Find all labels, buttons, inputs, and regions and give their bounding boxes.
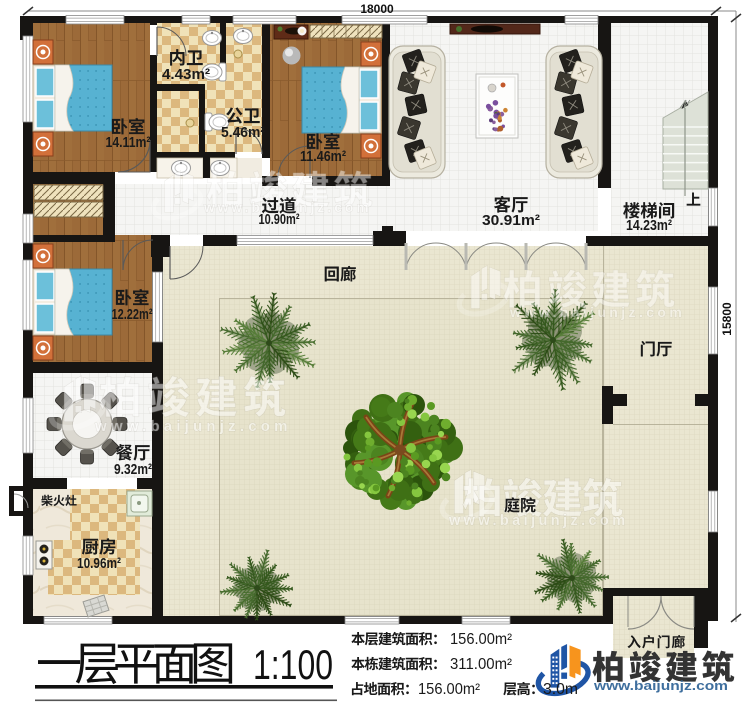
svg-text:www.baijunjz.com: www.baijunjz.com (94, 418, 292, 435)
svg-text:156.00m²: 156.00m² (450, 631, 512, 648)
svg-text:1:100: 1:100 (253, 641, 333, 688)
svg-text:18000: 18000 (360, 2, 394, 16)
svg-text:www.baijunjz.com: www.baijunjz.com (593, 679, 728, 693)
svg-text:12.22m²: 12.22m² (112, 306, 153, 323)
svg-text:11.46m²: 11.46m² (300, 148, 346, 165)
svg-text:14.23m²: 14.23m² (626, 217, 672, 234)
svg-text:10.90m²: 10.90m² (259, 211, 300, 228)
svg-text:15800: 15800 (720, 302, 734, 336)
svg-text:www.baijunjz.com: www.baijunjz.com (448, 513, 629, 529)
svg-text:10.96m²: 10.96m² (77, 555, 121, 572)
svg-text:4.43m²: 4.43m² (162, 66, 210, 83)
svg-text:156.00m²: 156.00m² (418, 681, 480, 698)
svg-text:3.0m: 3.0m (543, 681, 578, 698)
svg-text:14.11m²: 14.11m² (106, 134, 151, 151)
svg-text:311.00m²: 311.00m² (450, 656, 512, 673)
svg-text:30.91m²: 30.91m² (482, 212, 540, 229)
svg-text:www.baijunjz.com: www.baijunjz.com (509, 304, 685, 320)
svg-text:5.46m²: 5.46m² (221, 124, 265, 141)
svg-text:9.32m²: 9.32m² (114, 461, 152, 478)
